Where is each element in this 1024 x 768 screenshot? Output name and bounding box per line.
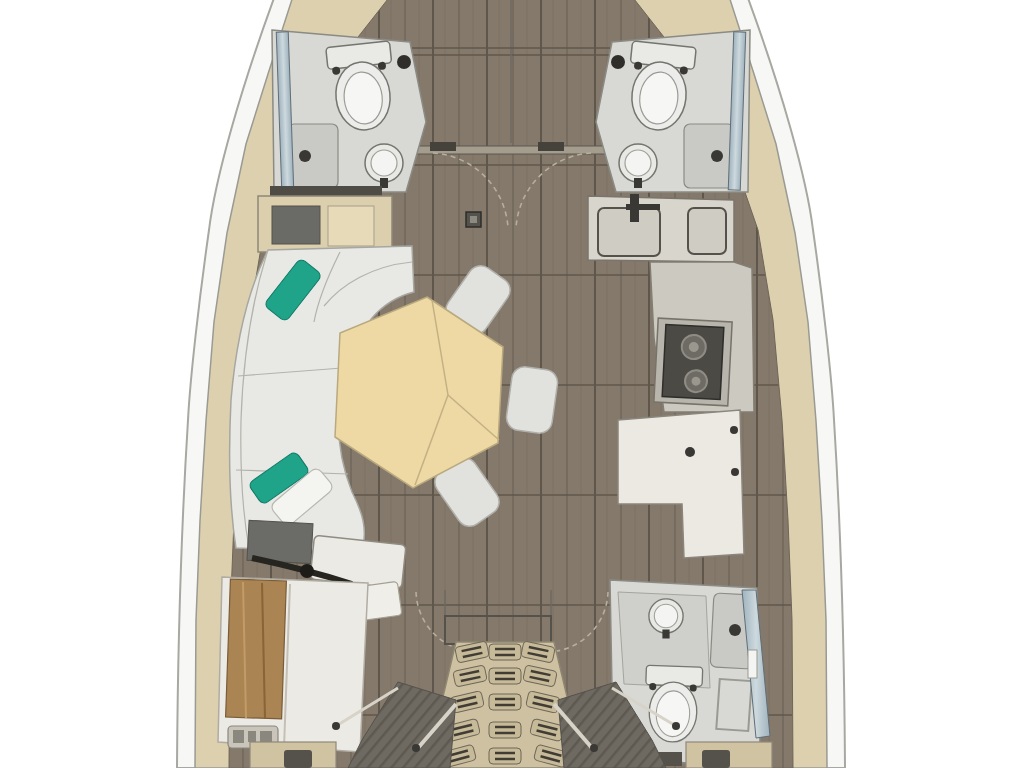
stern-hatch-port <box>284 750 312 768</box>
shower-pan <box>684 124 734 188</box>
shower-drain <box>729 624 741 636</box>
salon-storage-cabinet <box>258 186 392 252</box>
forward-head-starboard <box>596 30 750 192</box>
stern-hatch-starboard <box>702 750 730 768</box>
cabinet-hatch-light <box>328 206 374 246</box>
wall-fitting <box>611 55 625 69</box>
wood-headboard <box>226 579 287 719</box>
sailboat-floor-plan <box>0 0 1024 768</box>
cabinet-hatch-dark <box>272 206 320 244</box>
forward-head-port <box>272 30 426 192</box>
stool-right <box>505 365 559 435</box>
shower-drain <box>711 150 723 162</box>
two-burner-stove <box>654 318 732 406</box>
shower-pan <box>288 124 338 188</box>
desk-knob <box>730 426 738 434</box>
door-threshold-starboard <box>538 142 564 151</box>
floor-plan-canvas <box>0 0 1024 768</box>
wall-fitting <box>397 55 411 69</box>
window-brace <box>748 650 757 678</box>
shower-drain <box>299 150 311 162</box>
desk-knob <box>731 468 739 476</box>
desk-knob <box>685 447 695 457</box>
door-threshold-port <box>430 142 456 151</box>
galley-sink-small <box>688 208 726 254</box>
galley-sink-large <box>598 208 660 256</box>
